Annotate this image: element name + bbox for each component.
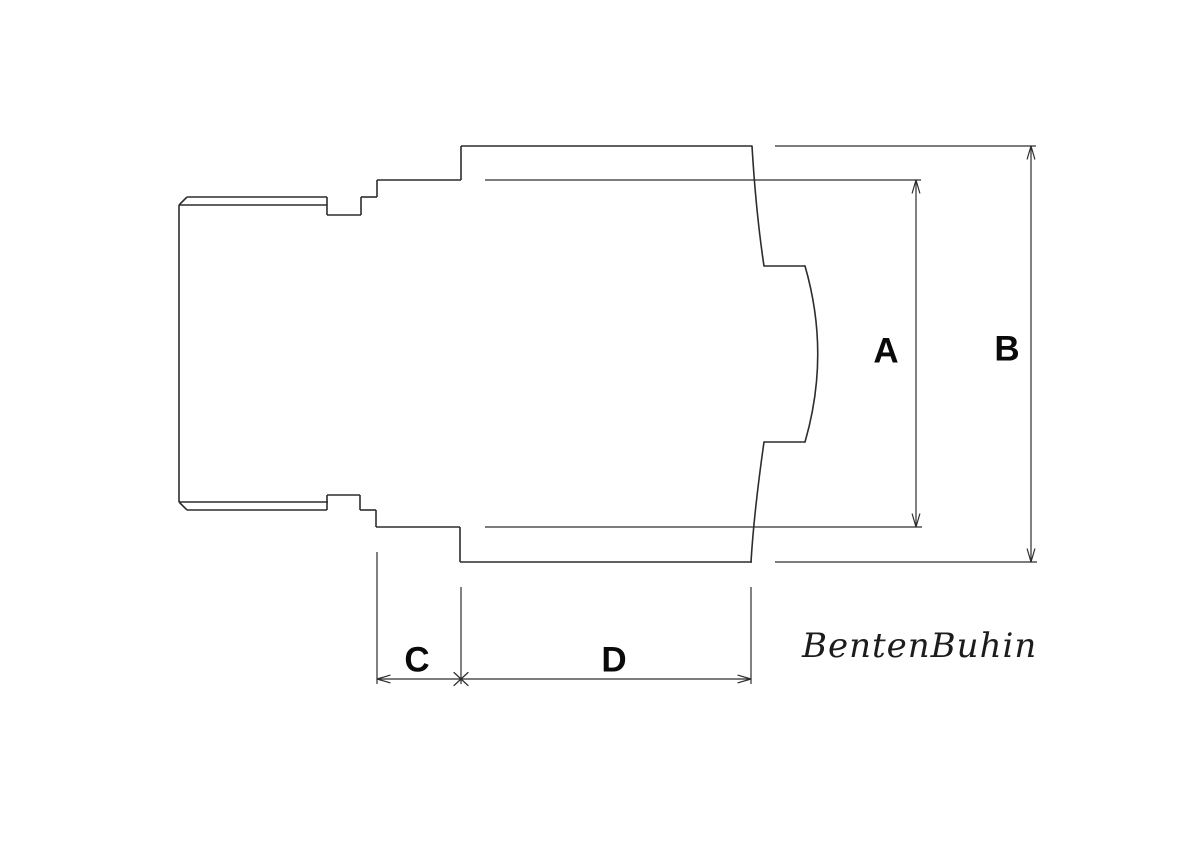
brand-signature: BentenBuhin xyxy=(802,629,1037,663)
dimension-label-a: A xyxy=(873,334,898,369)
dimension-label-d: D xyxy=(601,643,626,678)
body-right-edge-lower xyxy=(751,442,764,562)
dimension-label-c: C xyxy=(404,643,429,678)
drawing-stage: A B C D BentenBuhin xyxy=(0,0,1200,848)
drawing-canvas xyxy=(0,0,1200,848)
nose-curve xyxy=(805,266,818,442)
body-right-edge-upper xyxy=(752,146,764,266)
dimension-label-b: B xyxy=(994,332,1019,367)
chamfer-bottom-left xyxy=(179,502,187,510)
chamfer-top-left xyxy=(179,197,187,205)
